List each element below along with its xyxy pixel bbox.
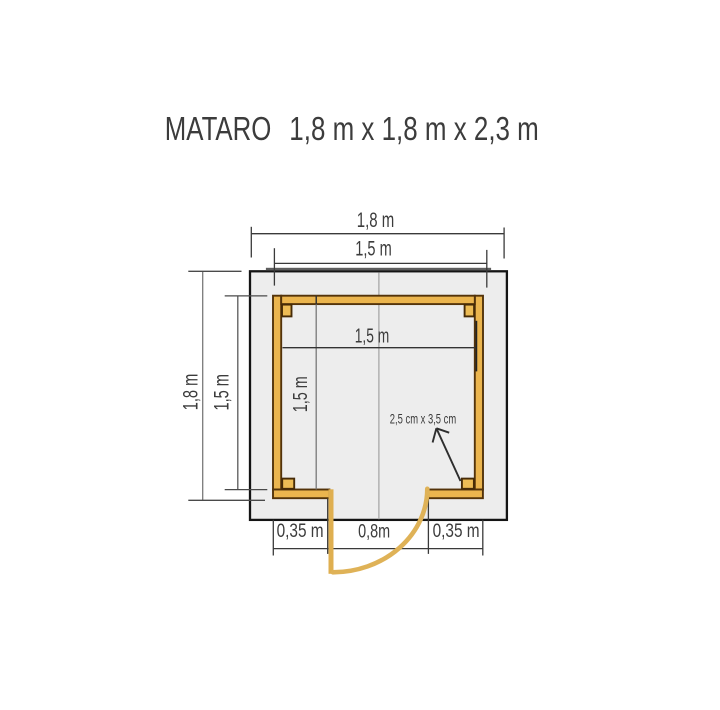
svg-text:1,5 m: 1,5 m — [289, 376, 312, 412]
svg-text:1,8 m x 1,8 m x 2,3 m: 1,8 m x 1,8 m x 2,3 m — [289, 111, 539, 148]
svg-text:1,8 m: 1,8 m — [178, 374, 202, 411]
svg-text:1,5 m: 1,5 m — [355, 324, 390, 347]
svg-text:1,5 m: 1,5 m — [355, 237, 392, 261]
svg-text:1,5 m: 1,5 m — [209, 374, 233, 411]
svg-text:MATARO: MATARO — [165, 111, 271, 148]
svg-text:1,8 m: 1,8 m — [357, 208, 395, 232]
svg-text:0,35 m: 0,35 m — [277, 521, 324, 542]
svg-text:2,5 cm x 3,5 cm: 2,5 cm x 3,5 cm — [390, 412, 456, 427]
svg-text:0,8m: 0,8m — [358, 521, 390, 543]
svg-text:0,35 m: 0,35 m — [433, 521, 480, 542]
